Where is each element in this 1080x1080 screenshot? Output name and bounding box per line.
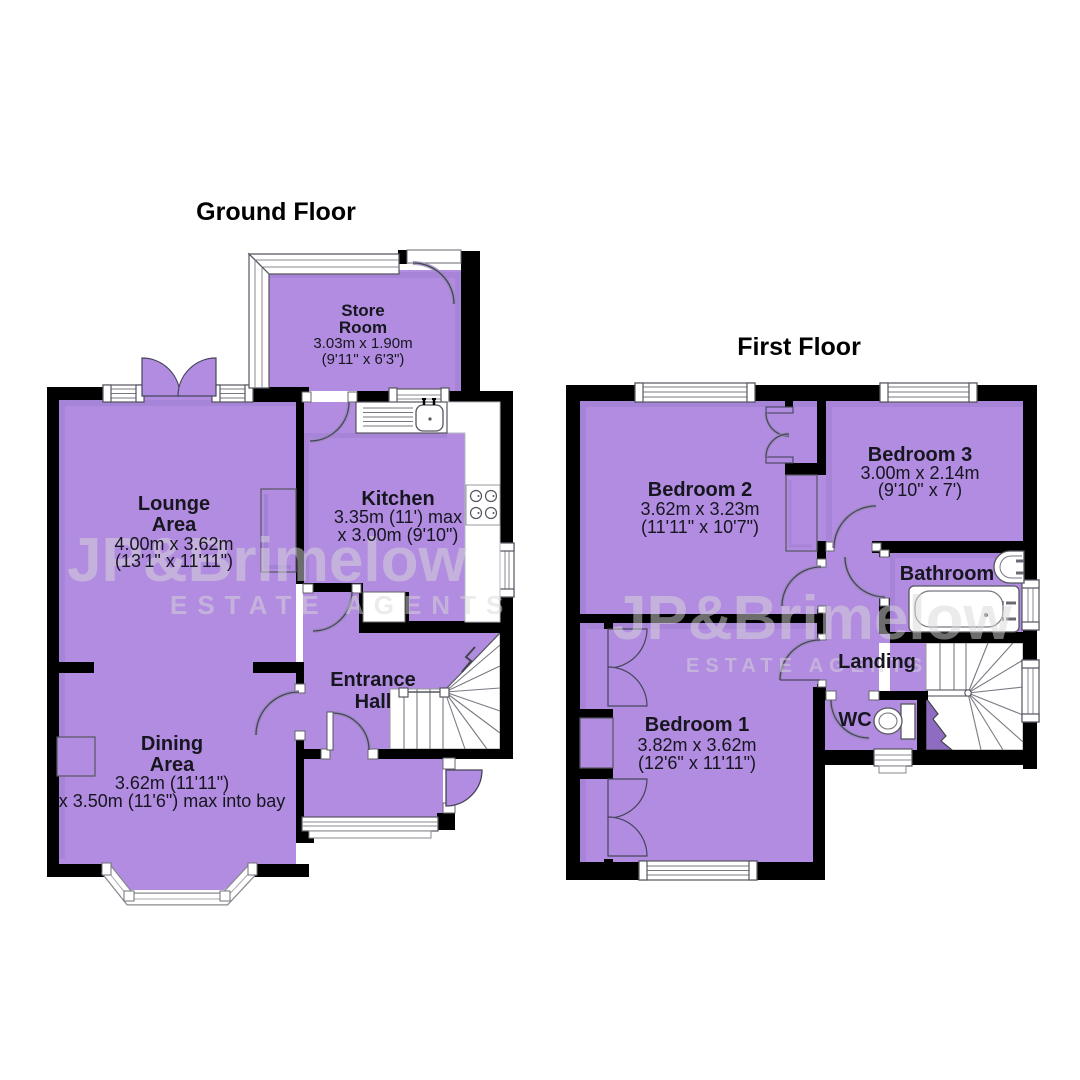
- svg-text:Lounge: Lounge: [138, 493, 210, 515]
- svg-text:(9'10" x 7'): (9'10" x 7'): [878, 480, 962, 500]
- svg-text:Entrance: Entrance: [330, 669, 416, 691]
- svg-text:Ground Floor: Ground Floor: [196, 198, 356, 226]
- svg-text:First Floor: First Floor: [737, 333, 861, 361]
- svg-text:JP&Brimelow: JP&Brimelow: [612, 584, 1012, 653]
- svg-text:(9'11" x 6'3"): (9'11" x 6'3"): [322, 351, 405, 368]
- svg-text:Dining: Dining: [141, 733, 203, 755]
- svg-text:WC: WC: [838, 709, 871, 731]
- svg-text:3.82m x 3.62m: 3.82m x 3.62m: [637, 735, 756, 755]
- svg-text:Area: Area: [152, 514, 197, 536]
- svg-text:(12'6" x 11'11"): (12'6" x 11'11"): [638, 753, 756, 773]
- svg-text:ESTATE AGENTS: ESTATE AGENTS: [170, 590, 513, 620]
- svg-text:Hall: Hall: [355, 691, 392, 713]
- svg-text:3.35m (11') max: 3.35m (11') max: [334, 507, 462, 527]
- svg-text:(11'11" x 10'7"): (11'11" x 10'7"): [641, 517, 759, 537]
- svg-text:3.62m (11'11"): 3.62m (11'11"): [115, 773, 229, 793]
- svg-text:Landing: Landing: [838, 651, 916, 673]
- svg-text:x 3.00m (9'10"): x 3.00m (9'10"): [338, 525, 459, 545]
- svg-text:3.03m x 1.90m: 3.03m x 1.90m: [313, 335, 412, 352]
- svg-text:Bedroom 2: Bedroom 2: [648, 479, 752, 501]
- svg-text:Bathroom: Bathroom: [900, 563, 994, 585]
- svg-text:(13'1" x 11'11"): (13'1" x 11'11"): [115, 551, 233, 571]
- svg-text:Bedroom 1: Bedroom 1: [645, 714, 749, 736]
- svg-text:3.62m x 3.23m: 3.62m x 3.23m: [640, 499, 759, 519]
- svg-text:x 3.50m (11'6") max into bay: x 3.50m (11'6") max into bay: [59, 791, 286, 811]
